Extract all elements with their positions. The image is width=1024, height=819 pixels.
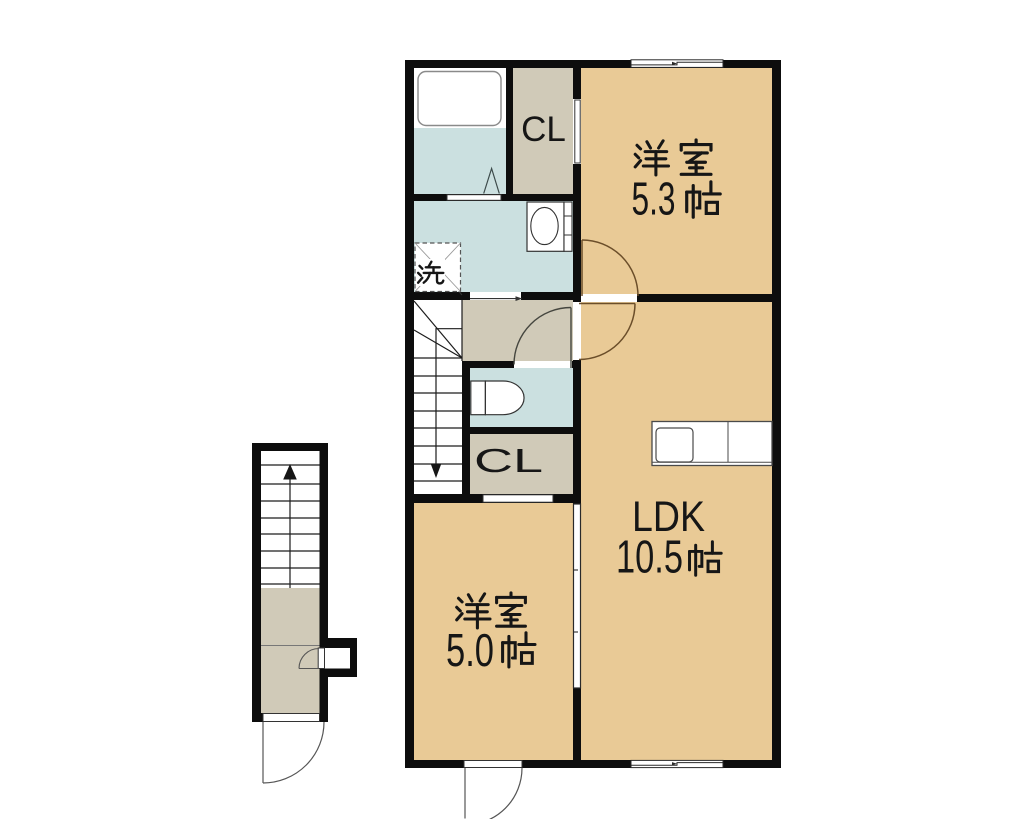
svg-text:CL: CL xyxy=(474,442,543,479)
svg-text:5.0: 5.0 xyxy=(446,624,494,676)
svg-text:CL: CL xyxy=(521,110,566,149)
svg-text:10.5: 10.5 xyxy=(616,531,683,583)
svg-text:5.3: 5.3 xyxy=(632,173,676,225)
